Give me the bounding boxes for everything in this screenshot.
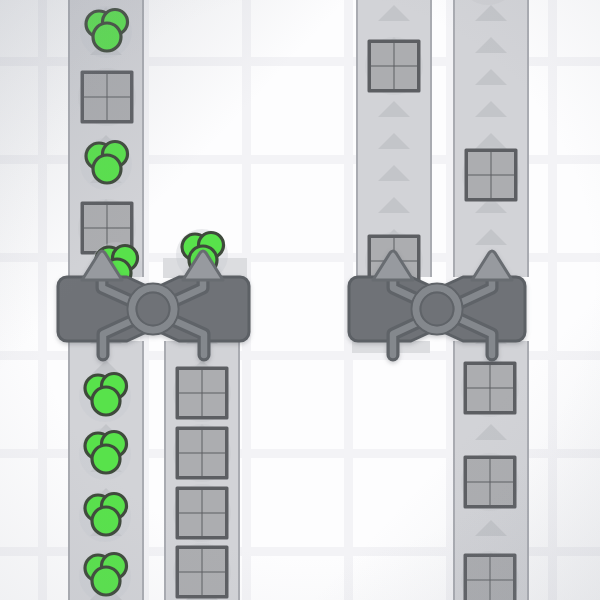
belt-up-arrow-icons [166,341,238,600]
center-ring [411,283,463,335]
center-ring [127,283,179,335]
game-viewport[interactable] [0,0,600,600]
belt-up-arrow-icons [70,0,142,277]
belt-up-arrow-icons [455,0,527,277]
belt-up-arrow-icons [70,341,142,600]
belt-up-arrow-icons [455,341,527,600]
belt-up-arrow-icons [358,0,430,277]
belt-left2-lower[interactable] [164,341,240,600]
belt-right2-upper[interactable] [453,0,529,277]
belt-right1-upper[interactable] [356,0,432,277]
balancer-right[interactable] [325,238,549,372]
balancer-left[interactable] [34,238,273,372]
belt-left-lower[interactable] [68,341,144,600]
output-arrow-icons [373,251,512,280]
belt-left-upper[interactable] [68,0,144,277]
output-arrow-icons [82,251,223,280]
belt-right2-lower[interactable] [453,341,529,600]
